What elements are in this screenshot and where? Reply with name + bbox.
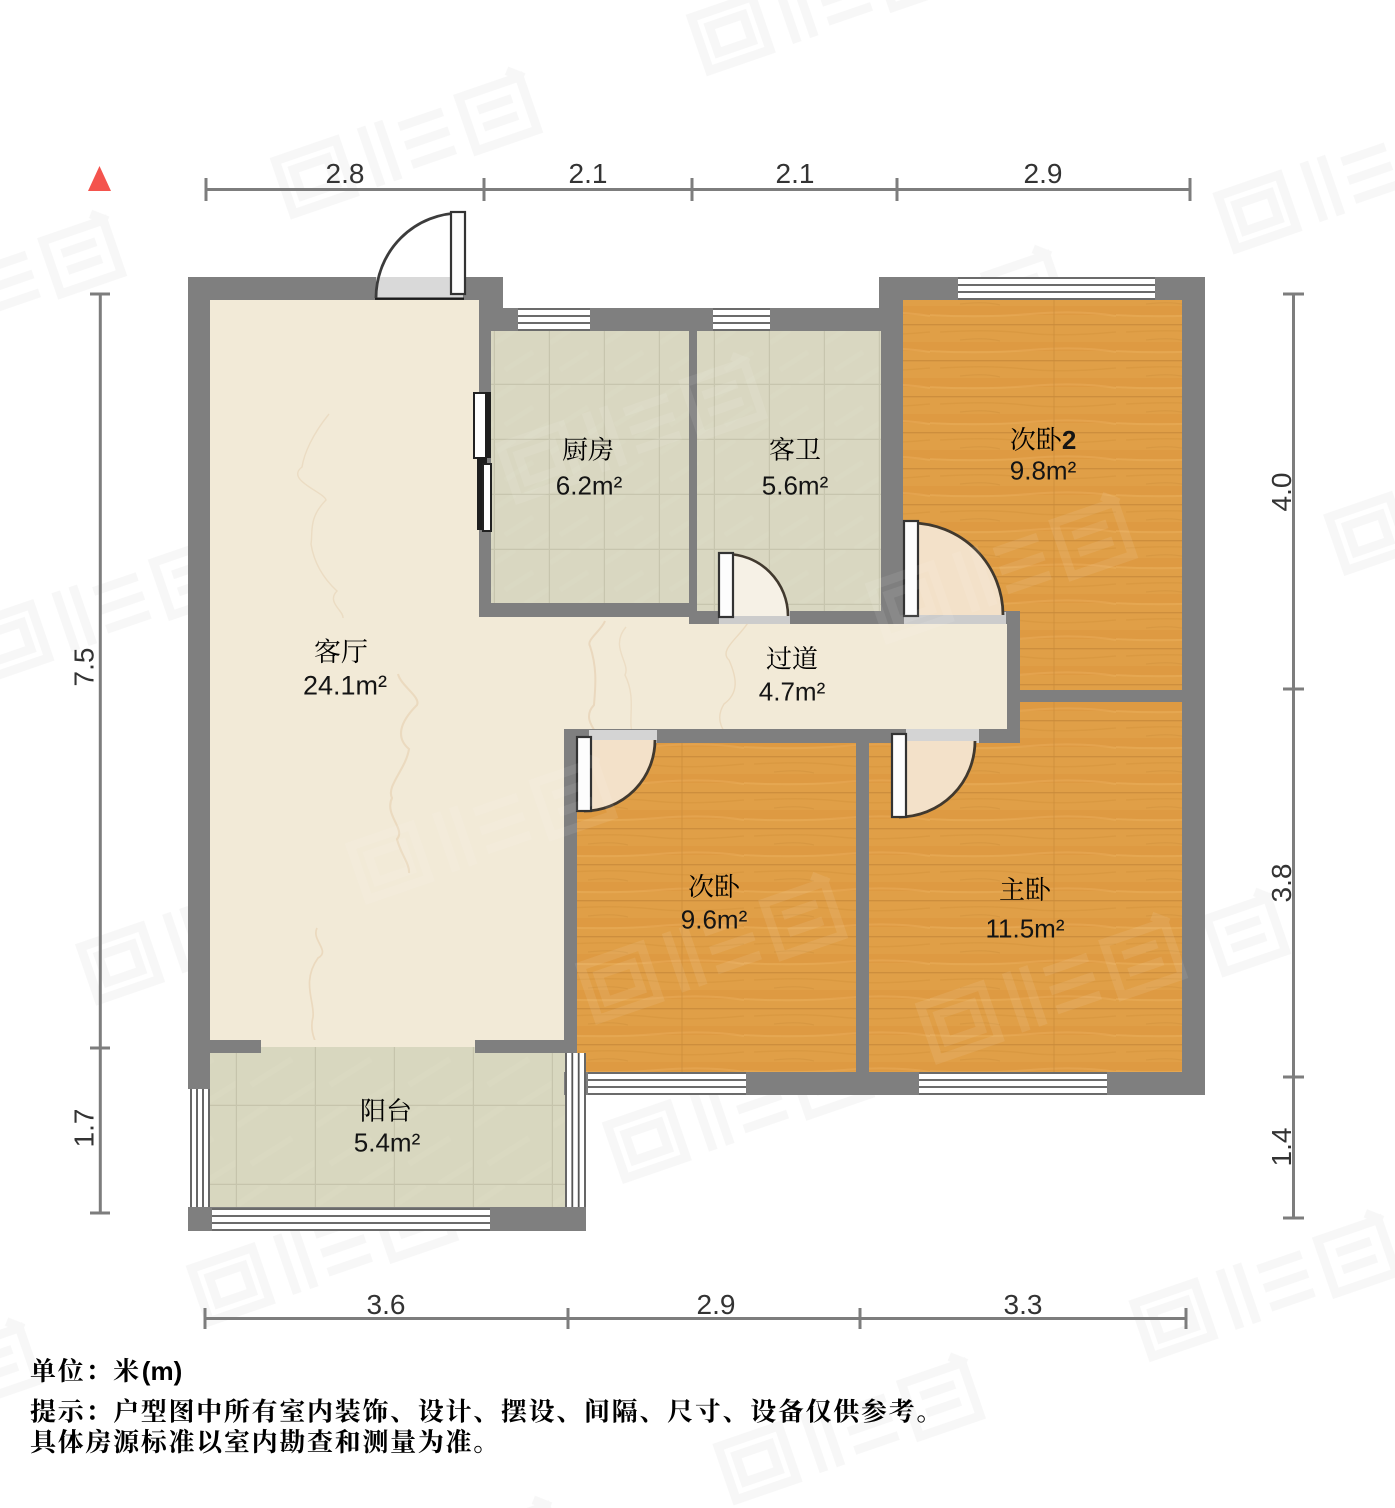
svg-text:5.4m²: 5.4m²: [354, 1127, 421, 1157]
svg-text:2: 2: [1062, 425, 1076, 455]
svg-text:6.2m²: 6.2m²: [556, 470, 623, 500]
svg-text:3.8: 3.8: [1266, 864, 1297, 903]
svg-text:7.5: 7.5: [69, 648, 100, 687]
svg-text:1.4: 1.4: [1266, 1128, 1297, 1167]
svg-text:2.9: 2.9: [1024, 158, 1063, 189]
svg-text:2.9: 2.9: [697, 1289, 736, 1320]
svg-text:3.3: 3.3: [1004, 1289, 1043, 1320]
svg-text:9.8m²: 9.8m²: [1010, 455, 1077, 485]
svg-text:2.8: 2.8: [326, 158, 365, 189]
svg-text:4.7m²: 4.7m²: [759, 676, 826, 706]
svg-text:24.1m²: 24.1m²: [303, 671, 387, 701]
svg-text:9.6m²: 9.6m²: [681, 904, 748, 934]
svg-text:2.1: 2.1: [776, 158, 815, 189]
svg-text:1.7: 1.7: [69, 1109, 100, 1148]
svg-text:3.6: 3.6: [367, 1289, 406, 1320]
svg-text:2.1: 2.1: [569, 158, 608, 189]
svg-text:11.5m²: 11.5m²: [986, 913, 1065, 943]
svg-text:5.6m²: 5.6m²: [762, 470, 829, 500]
svg-text:(m): (m): [142, 1356, 182, 1386]
svg-text:4.0: 4.0: [1266, 473, 1297, 512]
